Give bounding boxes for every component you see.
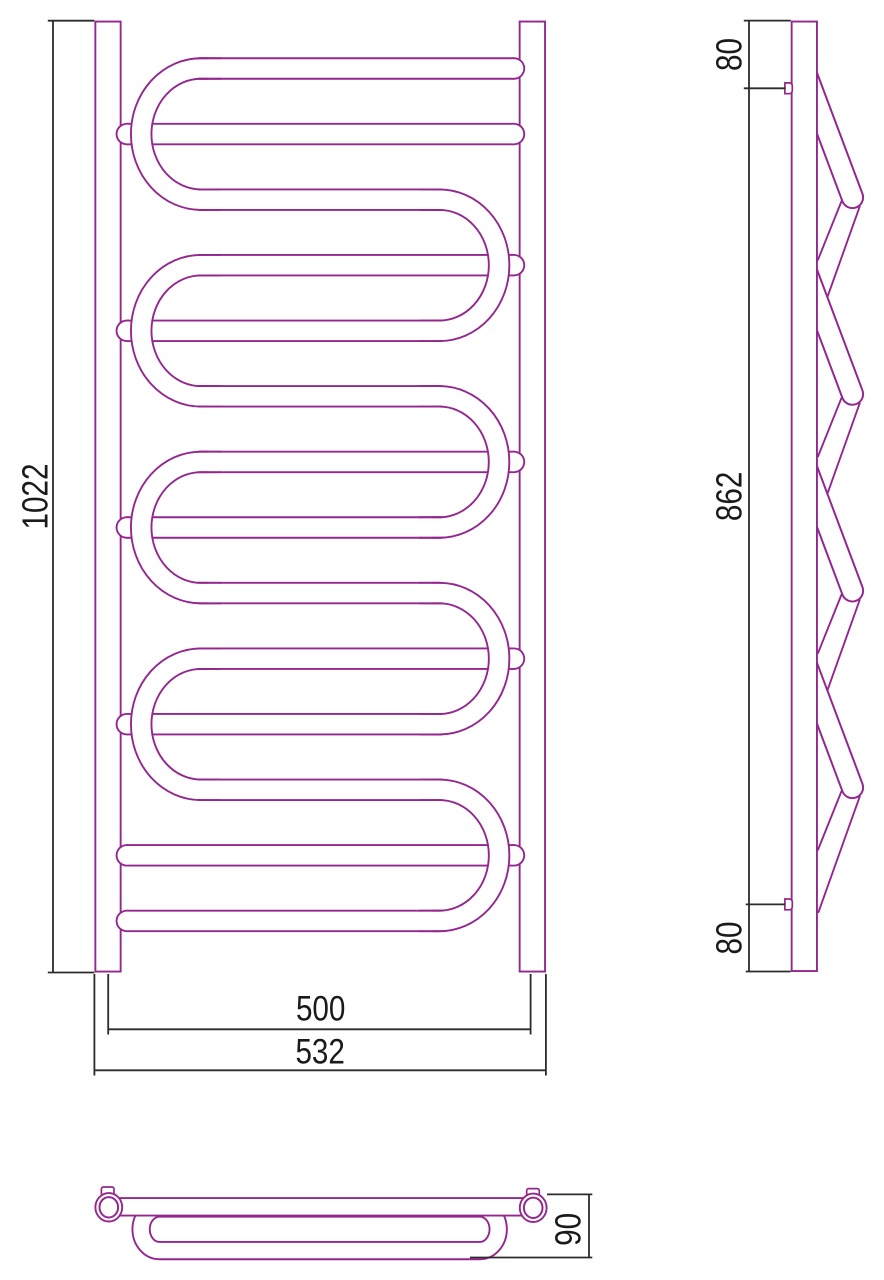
svg-text:862: 862 xyxy=(708,472,749,522)
svg-text:80: 80 xyxy=(708,38,749,71)
svg-text:1022: 1022 xyxy=(14,464,55,530)
svg-text:80: 80 xyxy=(708,922,749,955)
svg-text:532: 532 xyxy=(295,1032,345,1071)
svg-text:500: 500 xyxy=(296,990,346,1029)
svg-text:90: 90 xyxy=(547,1213,588,1246)
